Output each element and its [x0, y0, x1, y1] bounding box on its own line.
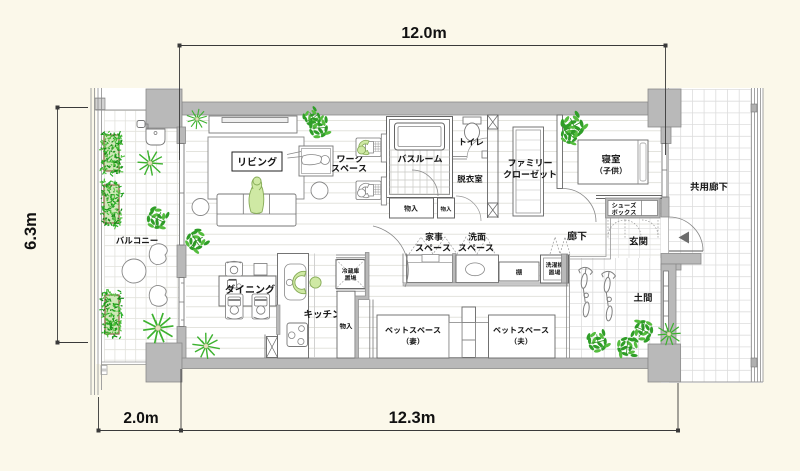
svg-text:12.3m: 12.3m: [389, 409, 436, 427]
svg-text:2.0m: 2.0m: [123, 410, 158, 427]
svg-text:6.3m: 6.3m: [22, 212, 40, 250]
svg-text:12.0m: 12.0m: [401, 25, 446, 42]
